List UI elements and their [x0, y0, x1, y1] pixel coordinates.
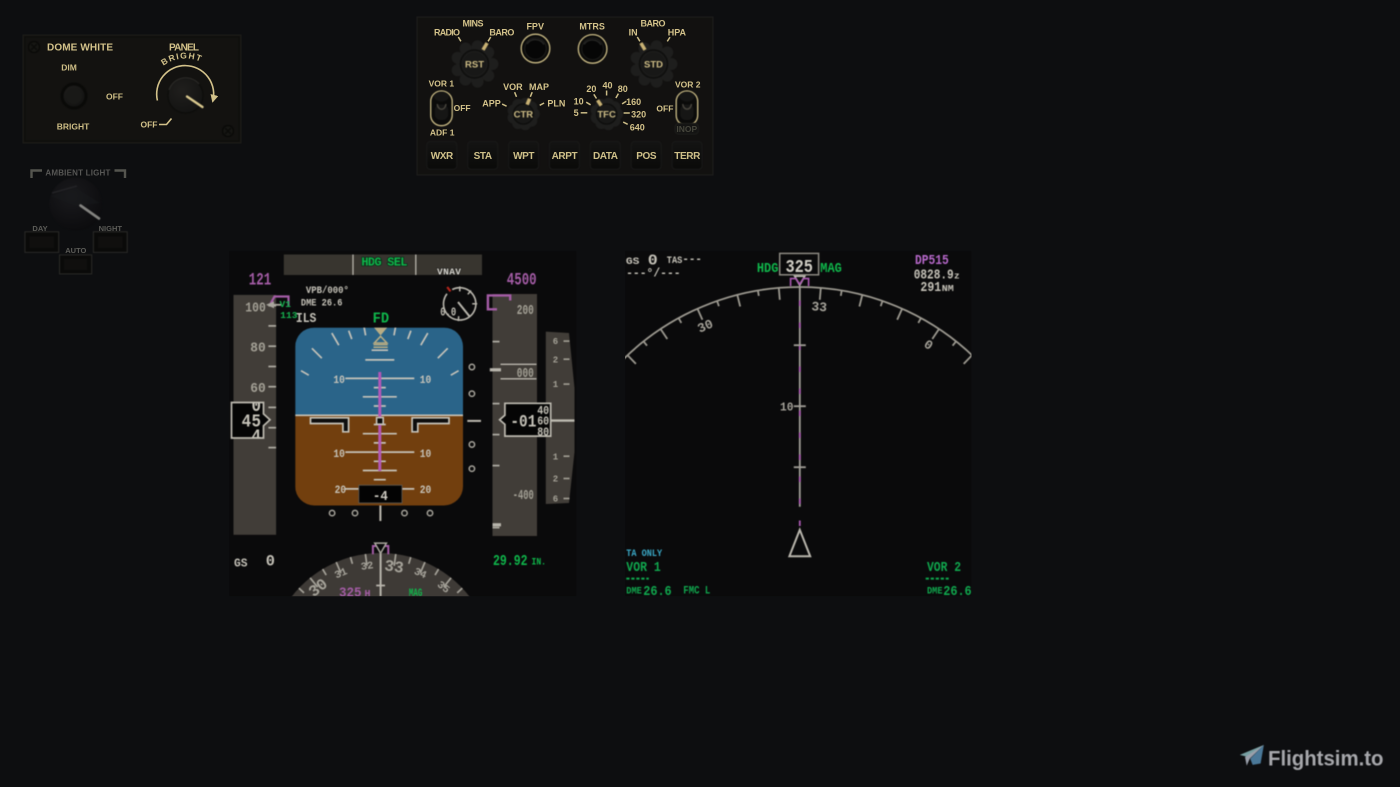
svg-text:HPA: HPA	[668, 28, 687, 38]
svg-text:40: 40	[602, 81, 612, 91]
svg-text:VOR: VOR	[503, 82, 523, 92]
svg-text:-01: -01	[510, 413, 536, 433]
svg-text:FMC L: FMC L	[683, 586, 710, 598]
svg-text:200: 200	[517, 303, 534, 319]
svg-text:CTR: CTR	[514, 110, 534, 121]
svg-text:TERR: TERR	[674, 151, 701, 162]
svg-text:1: 1	[553, 380, 559, 390]
svg-text:IN.: IN.	[532, 557, 547, 568]
svg-text:MAG: MAG	[820, 261, 842, 277]
svg-text:NM: NM	[942, 284, 954, 294]
svg-text:121: 121	[249, 270, 271, 290]
svg-text:TAS: TAS	[667, 255, 683, 267]
svg-text:HDG SEL: HDG SEL	[361, 256, 407, 270]
svg-text:10: 10	[574, 96, 584, 106]
svg-text:APP: APP	[482, 99, 501, 109]
svg-text:6: 6	[553, 495, 558, 505]
svg-text:10: 10	[420, 449, 432, 461]
svg-text:320: 320	[631, 110, 646, 120]
svg-text:STA: STA	[474, 151, 492, 162]
svg-text:BARO: BARO	[489, 28, 514, 38]
svg-text:10: 10	[333, 375, 345, 387]
svg-text:WXR: WXR	[431, 151, 454, 162]
svg-text:DATA: DATA	[593, 151, 618, 162]
svg-text:291: 291	[920, 281, 941, 296]
svg-text:0: 0	[266, 552, 275, 570]
svg-text:DME: DME	[927, 587, 943, 598]
svg-text:Flightsim.to: Flightsim.to	[1268, 746, 1384, 770]
svg-text:20: 20	[586, 84, 596, 94]
svg-text:INOP: INOP	[676, 124, 697, 134]
svg-text:4: 4	[242, 412, 252, 432]
svg-text:GS: GS	[234, 558, 248, 571]
svg-text:OFF: OFF	[106, 92, 123, 102]
svg-text:20: 20	[335, 485, 347, 497]
svg-text:DME 26.6: DME 26.6	[301, 298, 343, 310]
svg-text:6: 6	[553, 337, 558, 347]
svg-text:ILS: ILS	[296, 312, 317, 327]
svg-text:z: z	[954, 271, 960, 282]
svg-text:HDG: HDG	[757, 261, 779, 277]
svg-text:OFF: OFF	[454, 103, 471, 113]
svg-text:DP515: DP515	[915, 254, 949, 269]
svg-text:MTRS: MTRS	[579, 22, 605, 32]
svg-text:33: 33	[811, 299, 828, 315]
svg-text:-4: -4	[373, 490, 388, 505]
svg-text:PLN: PLN	[547, 99, 565, 109]
svg-text:DIM: DIM	[61, 63, 77, 73]
svg-text:5: 5	[574, 108, 579, 118]
svg-text:ADF 1: ADF 1	[430, 128, 455, 138]
svg-text:100: 100	[245, 300, 266, 316]
svg-text:33: 33	[383, 557, 404, 577]
svg-text:---°/---: ---°/---	[626, 267, 681, 280]
svg-text:VNAV: VNAV	[437, 266, 461, 277]
svg-text:IN: IN	[629, 28, 638, 38]
svg-text:640: 640	[630, 123, 645, 133]
svg-text:DME: DME	[626, 587, 642, 598]
svg-text:32: 32	[360, 560, 374, 574]
svg-text:1: 1	[553, 452, 559, 462]
svg-text:VPB/000°: VPB/000°	[306, 285, 349, 297]
svg-text:MAP: MAP	[529, 82, 549, 92]
svg-text:OFF: OFF	[141, 120, 158, 130]
svg-text:V1: V1	[280, 299, 292, 310]
svg-text:VOR 2: VOR 2	[675, 80, 701, 90]
svg-text:MINS: MINS	[463, 19, 484, 29]
svg-text:POS: POS	[636, 151, 657, 162]
svg-text:VOR 2: VOR 2	[927, 560, 961, 576]
svg-text:29.92: 29.92	[493, 554, 528, 570]
svg-text:GS: GS	[626, 256, 640, 268]
svg-text:DOME WHITE: DOME WHITE	[47, 43, 113, 54]
svg-text:FPV: FPV	[526, 22, 544, 32]
svg-text:000: 000	[517, 366, 534, 382]
svg-text:10: 10	[420, 375, 432, 387]
svg-text:STD: STD	[644, 60, 663, 71]
svg-text:-400: -400	[513, 488, 534, 504]
svg-text:10: 10	[333, 449, 345, 461]
svg-text:---: ---	[682, 253, 702, 267]
svg-text:FD: FD	[373, 311, 390, 327]
svg-text:WPT: WPT	[513, 151, 534, 162]
svg-text:160: 160	[626, 97, 641, 107]
svg-text:325: 325	[785, 257, 813, 278]
svg-text:2: 2	[553, 475, 558, 485]
svg-text:RADIO: RADIO	[434, 28, 460, 38]
svg-text:RST: RST	[465, 60, 484, 71]
svg-text:AUTO: AUTO	[65, 246, 86, 255]
svg-text:80: 80	[250, 341, 266, 357]
svg-text:TFC: TFC	[597, 110, 616, 121]
svg-text:BRIGHT: BRIGHT	[57, 122, 90, 132]
svg-text:VOR 1: VOR 1	[429, 79, 455, 89]
svg-text:ARPT: ARPT	[552, 151, 578, 162]
svg-text:2: 2	[553, 355, 558, 365]
svg-text:10: 10	[780, 401, 794, 415]
svg-text:0.0: 0.0	[440, 306, 456, 320]
svg-text:80: 80	[618, 84, 628, 94]
svg-text:TA ONLY: TA ONLY	[626, 548, 662, 560]
svg-text:60: 60	[250, 381, 266, 397]
svg-text:AMBIENT LIGHT: AMBIENT LIGHT	[45, 169, 110, 178]
svg-text:OFF: OFF	[656, 104, 673, 114]
svg-text:VOR 1: VOR 1	[626, 560, 661, 576]
svg-text:20: 20	[420, 485, 432, 497]
svg-text:BARO: BARO	[641, 19, 666, 29]
svg-text:4500: 4500	[507, 270, 537, 290]
